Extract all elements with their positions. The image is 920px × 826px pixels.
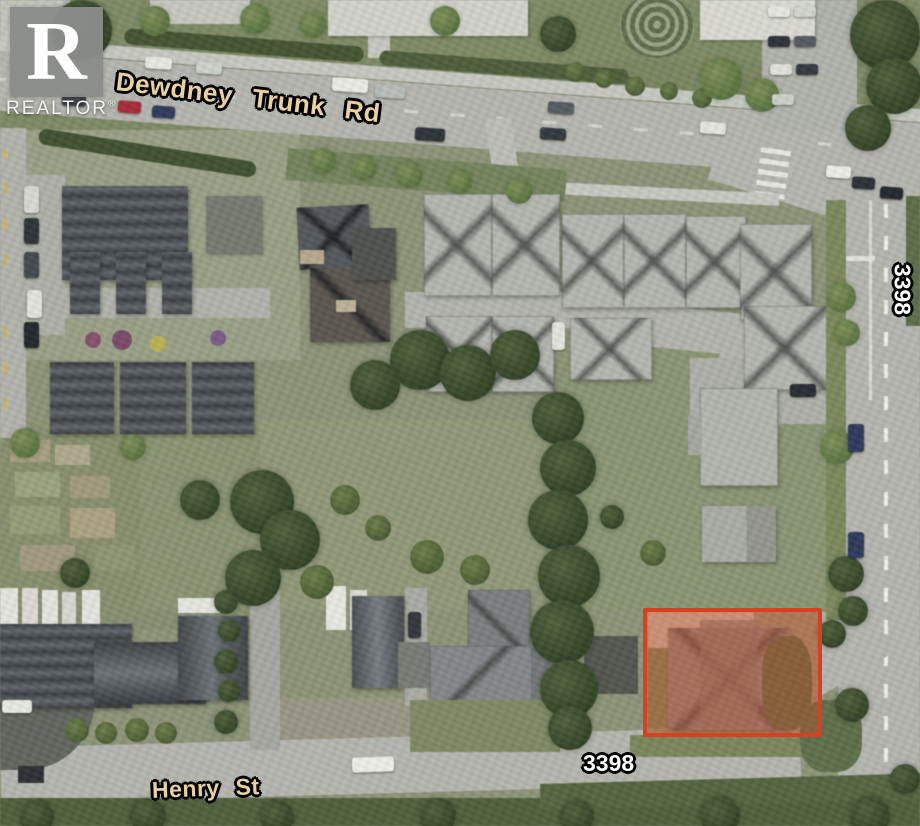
realtor-wordmark-text: REALTOR — [6, 98, 108, 119]
realtor-logo: R — [10, 7, 103, 97]
aerial-photo-map: Dewdney Trunk Rd Henry St 3398 3398 R RE… — [0, 0, 920, 826]
subject-property-boundary — [643, 608, 822, 737]
realtor-r-icon: R — [26, 10, 87, 94]
address-label-south: 3398 — [583, 750, 634, 777]
registered-trademark-symbol: ® — [108, 99, 117, 110]
street-label-henry-st: Henry St — [152, 773, 260, 804]
realtor-wordmark: REALTOR® — [6, 98, 117, 120]
address-label-east: 3398 — [889, 264, 916, 316]
